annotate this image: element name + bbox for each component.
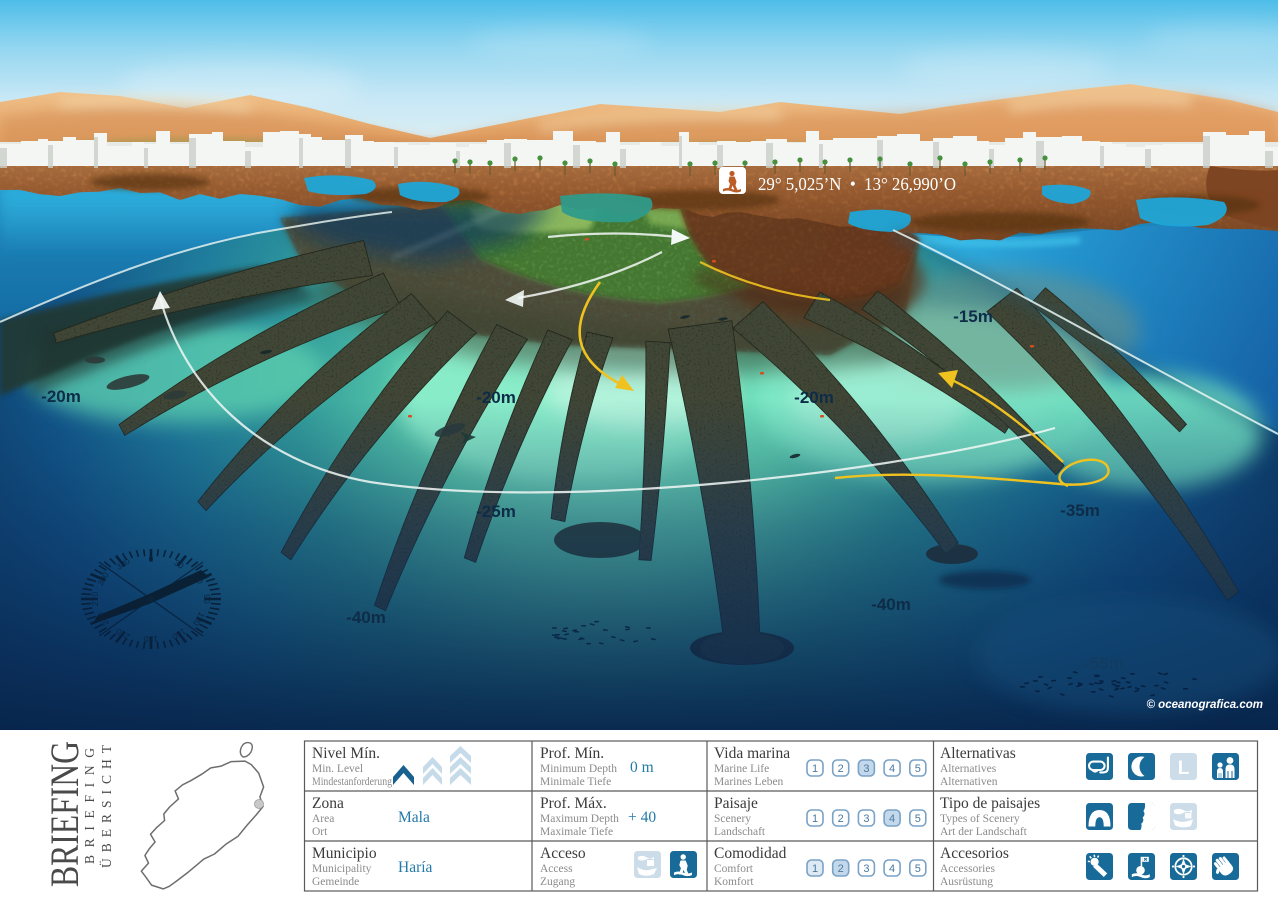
svg-text:Marines Leben: Marines Leben xyxy=(714,776,784,788)
svg-text:5: 5 xyxy=(915,813,921,825)
svg-text:270: 270 xyxy=(90,592,100,606)
svg-text:-40m: -40m xyxy=(346,608,386,627)
svg-text:Nivel Mín.: Nivel Mín. xyxy=(312,745,380,762)
svg-text:Comodidad: Comodidad xyxy=(714,845,787,862)
svg-text:90: 90 xyxy=(202,594,212,604)
svg-text:Vida marina: Vida marina xyxy=(714,745,790,762)
svg-text:ÜBERSICHT: ÜBERSICHT xyxy=(99,741,114,868)
svg-text:2: 2 xyxy=(838,863,844,875)
svg-text:2: 2 xyxy=(838,813,844,825)
svg-text:Gemeinde: Gemeinde xyxy=(312,876,359,888)
svg-text:Tipo de paisajes: Tipo de paisajes xyxy=(940,795,1040,812)
svg-text:Maximum Depth: Maximum Depth xyxy=(540,813,619,825)
svg-text:5: 5 xyxy=(915,763,921,775)
svg-text:Ausrüstung: Ausrüstung xyxy=(940,876,993,888)
svg-text:© oceanografica.com: © oceanografica.com xyxy=(1147,699,1263,711)
svg-text:Alternatives: Alternatives xyxy=(940,763,997,775)
svg-text:Landschaft: Landschaft xyxy=(714,826,766,838)
svg-text:3: 3 xyxy=(863,863,869,875)
svg-text:+ 40: + 40 xyxy=(628,809,656,826)
svg-text:Municipality: Municipality xyxy=(312,863,372,875)
svg-text:-40m: -40m xyxy=(871,595,911,614)
svg-text:Acceso: Acceso xyxy=(540,845,586,862)
svg-text:2: 2 xyxy=(838,763,844,775)
svg-text:0: 0 xyxy=(149,554,154,564)
svg-text:Comfort: Comfort xyxy=(714,863,754,875)
svg-text:Zugang: Zugang xyxy=(540,876,575,888)
svg-text:Maximale Tiefe: Maximale Tiefe xyxy=(540,826,613,838)
svg-text:-35m: -35m xyxy=(1060,501,1100,520)
svg-text:3: 3 xyxy=(863,813,869,825)
svg-text:-20m: -20m xyxy=(476,388,516,407)
svg-text:1: 1 xyxy=(812,813,818,825)
svg-text:3: 3 xyxy=(863,763,869,775)
svg-text:Zona: Zona xyxy=(312,795,344,812)
svg-text:Prof. Mín.: Prof. Mín. xyxy=(540,745,604,762)
svg-text:Access: Access xyxy=(540,863,573,875)
svg-text:Accesorios: Accesorios xyxy=(940,845,1009,862)
svg-text:Art der Landschaft: Art der Landschaft xyxy=(940,826,1028,838)
svg-text:29° 5,025’N • 13° 26,990’O: 29° 5,025’N • 13° 26,990’O xyxy=(758,174,956,194)
svg-text:Minimum Depth: Minimum Depth xyxy=(540,763,617,775)
svg-text:Paisaje: Paisaje xyxy=(714,795,758,812)
svg-text:4: 4 xyxy=(889,763,895,775)
svg-text:-20m: -20m xyxy=(41,387,81,406)
svg-text:Municipio: Municipio xyxy=(312,845,377,862)
svg-text:BRIEFING: BRIEFING xyxy=(42,741,87,887)
svg-text:180: 180 xyxy=(144,634,158,644)
svg-text:Types of Scenery: Types of Scenery xyxy=(940,813,1020,825)
svg-text:-20m: -20m xyxy=(794,388,834,407)
svg-text:-25m: -25m xyxy=(476,502,516,521)
svg-text:Prof. Máx.: Prof. Máx. xyxy=(540,795,607,812)
svg-text:Alternativas: Alternativas xyxy=(940,745,1016,762)
svg-text:4: 4 xyxy=(889,863,895,875)
svg-text:BRIEFING: BRIEFING xyxy=(82,742,97,864)
svg-text:1: 1 xyxy=(812,763,818,775)
svg-text:L: L xyxy=(1178,758,1190,779)
svg-text:Min. Level: Min. Level xyxy=(312,763,363,775)
svg-text:Minimale Tiefe: Minimale Tiefe xyxy=(540,776,611,788)
svg-text:Komfort: Komfort xyxy=(714,876,754,888)
svg-text:Marine Life: Marine Life xyxy=(714,763,769,775)
svg-text:Haría: Haría xyxy=(398,859,433,876)
svg-text:Mala: Mala xyxy=(398,809,430,826)
svg-text:1: 1 xyxy=(812,863,818,875)
svg-text:Ort: Ort xyxy=(312,826,328,838)
svg-text:Mindestanforderung: Mindestanforderung xyxy=(312,776,392,788)
svg-text:Area: Area xyxy=(312,813,334,825)
svg-text:4: 4 xyxy=(889,813,895,825)
svg-text:Alternativen: Alternativen xyxy=(940,776,998,788)
svg-text:5: 5 xyxy=(915,863,921,875)
svg-text:Scenery: Scenery xyxy=(714,813,751,825)
svg-text:-15m: -15m xyxy=(953,307,993,326)
svg-text:0 m: 0 m xyxy=(630,759,654,776)
svg-text:Accessories: Accessories xyxy=(940,863,995,875)
